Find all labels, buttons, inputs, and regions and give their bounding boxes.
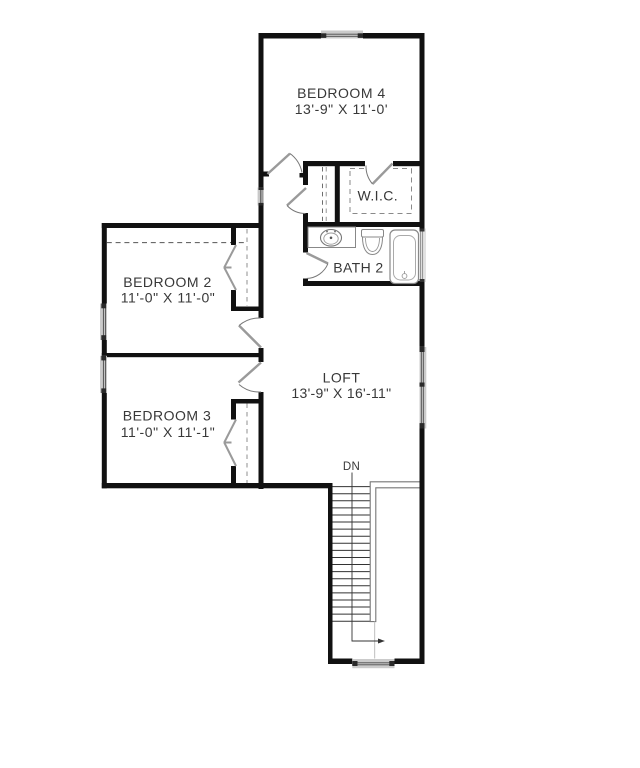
svg-text:LOFT: LOFT — [323, 369, 361, 385]
svg-text:13'-9" X 16'-11": 13'-9" X 16'-11" — [291, 385, 391, 401]
svg-text:BATH 2: BATH 2 — [333, 259, 383, 275]
svg-text:11'-0" X 11'-0": 11'-0" X 11'-0" — [121, 289, 216, 305]
svg-text:11'-0" X 11'-1": 11'-0" X 11'-1" — [121, 424, 216, 440]
svg-text:BEDROOM 4: BEDROOM 4 — [297, 85, 386, 101]
svg-text:DN: DN — [343, 461, 360, 473]
svg-text:BEDROOM 2: BEDROOM 2 — [123, 274, 212, 290]
svg-text:W.I.C.: W.I.C. — [358, 187, 399, 203]
svg-text:BEDROOM 3: BEDROOM 3 — [123, 408, 212, 424]
svg-text:13'-9" X 11'-0': 13'-9" X 11'-0' — [295, 101, 388, 117]
